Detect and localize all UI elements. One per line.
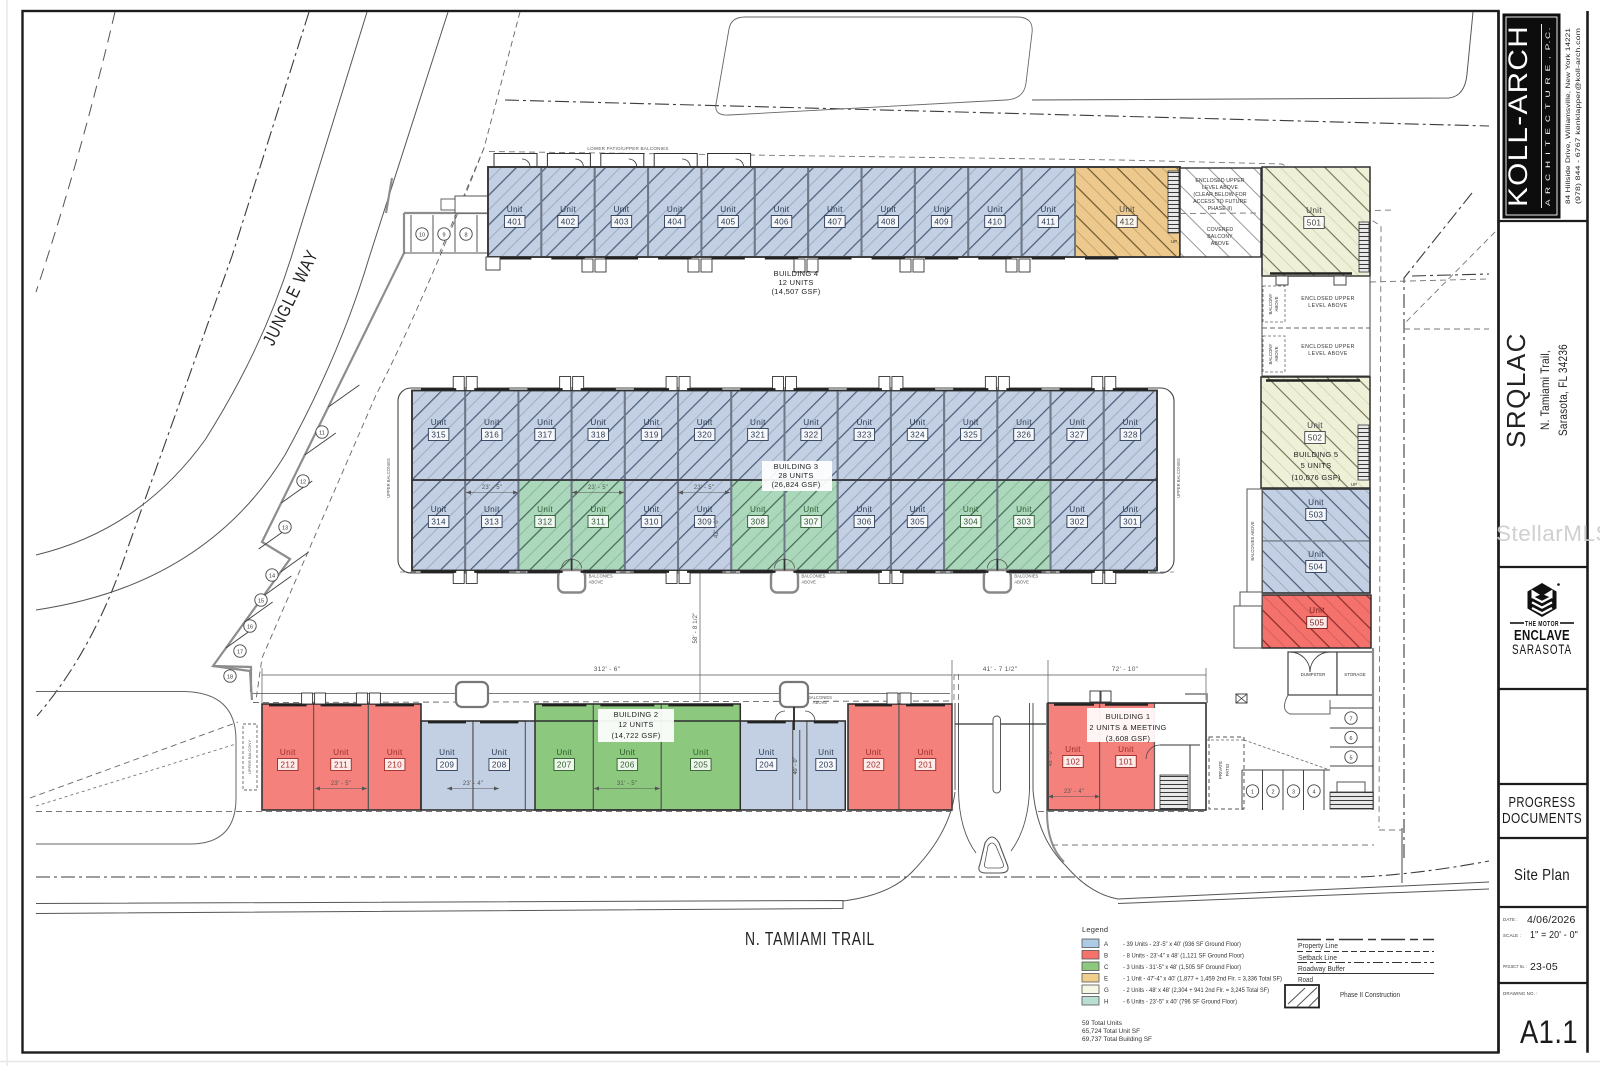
svg-text:Unit: Unit [918, 748, 934, 757]
svg-text:ABOVE: ABOVE [1211, 241, 1230, 247]
svg-text:Sarasota, FL 34236: Sarasota, FL 34236 [1556, 344, 1570, 436]
svg-text:(14,507 GSF): (14,507 GSF) [771, 287, 820, 296]
svg-text:84 Hillside Drive, Williamsvil: 84 Hillside Drive, Williamsville, New Yo… [1565, 28, 1572, 204]
svg-text:ABOVE: ABOVE [1274, 346, 1279, 361]
svg-text:13: 13 [282, 525, 288, 531]
svg-text:Unit: Unit [693, 748, 709, 757]
svg-text:SARASOTA: SARASOTA [1512, 642, 1572, 657]
svg-text:304: 304 [963, 518, 978, 527]
svg-text:ENCLOSED UPPER: ENCLOSED UPPER [1301, 344, 1354, 350]
svg-text:H: H [1104, 999, 1109, 1006]
svg-text:Unit: Unit [1123, 418, 1139, 427]
svg-text:328: 328 [1123, 431, 1138, 440]
svg-text:401: 401 [507, 218, 522, 227]
svg-text:17: 17 [237, 649, 243, 655]
svg-text:PROGRESS: PROGRESS [1509, 794, 1576, 811]
svg-text:Unit: Unit [387, 748, 403, 757]
svg-text:Unit: Unit [1308, 498, 1324, 507]
svg-text:DRAWING NO. :: DRAWING NO. : [1503, 991, 1538, 996]
svg-text:204: 204 [759, 761, 774, 770]
svg-text:DATE :: DATE : [1503, 917, 1518, 922]
svg-text:Unit: Unit [1308, 550, 1324, 559]
svg-text:31' - 5": 31' - 5" [617, 781, 637, 787]
svg-text:Unit: Unit [1306, 206, 1322, 215]
svg-text:Unit: Unit [667, 205, 683, 214]
svg-text:408: 408 [881, 218, 896, 227]
svg-text:12: 12 [300, 479, 306, 485]
svg-text:Setback Line: Setback Line [1298, 955, 1337, 962]
svg-text:23' - 5": 23' - 5" [588, 485, 608, 491]
svg-text:PRIVATE: PRIVATE [1218, 761, 1223, 779]
svg-text:205: 205 [694, 761, 709, 770]
svg-text:BALCONY: BALCONY [1268, 293, 1273, 314]
svg-text:ENCLOSED UPPER: ENCLOSED UPPER [1301, 296, 1354, 302]
svg-text:Unit: Unit [1309, 606, 1325, 615]
svg-text:12 UNITS: 12 UNITS [618, 720, 653, 729]
svg-text:Unit: Unit [774, 205, 790, 214]
svg-text:23' - 5": 23' - 5" [482, 485, 502, 491]
svg-text:319: 319 [644, 431, 659, 440]
svg-text:UP: UP [1351, 482, 1357, 487]
svg-text:Unit: Unit [590, 418, 606, 427]
svg-text:Unit: Unit [1065, 745, 1081, 754]
svg-text:23' - 4": 23' - 4" [463, 781, 483, 787]
svg-text:A R C H I T E C T U R E , P.C.: A R C H I T E C T U R E , P.C. [1545, 26, 1552, 206]
svg-text:Unit: Unit [644, 418, 660, 427]
svg-text:Unit: Unit [803, 418, 819, 427]
svg-text:404: 404 [667, 218, 682, 227]
svg-text:Unit: Unit [1307, 421, 1323, 430]
svg-text:405: 405 [721, 218, 736, 227]
svg-text:Unit: Unit [484, 505, 500, 514]
svg-text:Site Plan: Site Plan [1514, 867, 1570, 884]
svg-text:Unit: Unit [560, 205, 576, 214]
svg-text:Unit: Unit [537, 505, 553, 514]
svg-text:G: G [1104, 987, 1109, 994]
svg-text:Unit: Unit [1123, 505, 1139, 514]
svg-text:310: 310 [644, 518, 659, 527]
svg-text:BUILDING 1: BUILDING 1 [1106, 712, 1151, 721]
svg-text:ABOVE: ABOVE [813, 700, 828, 705]
svg-text:323: 323 [857, 431, 872, 440]
svg-text:40' - 0": 40' - 0" [793, 757, 799, 774]
svg-text:101: 101 [1119, 758, 1134, 767]
svg-text:Unit: Unit [910, 505, 926, 514]
svg-text:312' - 6": 312' - 6" [594, 666, 621, 673]
svg-text:502: 502 [1308, 434, 1323, 443]
svg-text:Unit: Unit [963, 505, 979, 514]
svg-text:Road: Road [1298, 977, 1313, 984]
svg-text:321: 321 [751, 431, 766, 440]
svg-text:402: 402 [561, 218, 576, 227]
svg-text:Unit: Unit [439, 748, 455, 757]
svg-text:3: 3 [1292, 789, 1295, 795]
svg-text:COVERED: COVERED [1207, 227, 1234, 233]
svg-text:409: 409 [934, 218, 949, 227]
svg-text:Legend: Legend [1082, 925, 1108, 934]
svg-text:65,724 Total Unit SF: 65,724 Total Unit SF [1082, 1028, 1140, 1035]
svg-text:322: 322 [804, 431, 819, 440]
svg-text:48' - 0": 48' - 0" [1048, 749, 1054, 766]
svg-text:1: 1 [1251, 789, 1254, 795]
svg-text:314: 314 [431, 518, 446, 527]
svg-text:BALCONIES: BALCONIES [1014, 574, 1038, 579]
svg-text:BALCONY: BALCONY [1268, 343, 1273, 364]
svg-text:15: 15 [258, 598, 264, 604]
svg-text:14: 14 [269, 573, 275, 579]
svg-text:LEVEL ABOVE: LEVEL ABOVE [1308, 303, 1348, 309]
svg-text:207: 207 [557, 761, 572, 770]
svg-text:PATIO: PATIO [1225, 763, 1230, 776]
svg-text:(3,608 GSF): (3,608 GSF) [1106, 734, 1151, 743]
svg-text:Unit: Unit [880, 205, 896, 214]
svg-text:PHASE II): PHASE II) [1208, 206, 1233, 212]
svg-text:Unit: Unit [1016, 505, 1032, 514]
svg-text:Unit: Unit [1069, 505, 1085, 514]
svg-text:504: 504 [1309, 563, 1324, 572]
svg-text:Unit: Unit [484, 418, 500, 427]
svg-text:325: 325 [963, 431, 978, 440]
svg-text:23' - 4": 23' - 4" [1064, 789, 1084, 795]
svg-text:Unit: Unit [1040, 205, 1056, 214]
svg-text:5: 5 [1349, 755, 1352, 761]
svg-text:407: 407 [828, 218, 843, 227]
svg-text:312: 312 [538, 518, 553, 527]
svg-text:11: 11 [319, 430, 325, 436]
svg-text:203: 203 [819, 761, 834, 770]
svg-text:12 UNITS: 12 UNITS [778, 278, 813, 287]
svg-text:302: 302 [1070, 518, 1085, 527]
svg-text:Unit: Unit [590, 505, 606, 514]
svg-text:Unit: Unit [720, 205, 736, 214]
svg-text:327: 327 [1070, 431, 1085, 440]
svg-text:28 UNITS: 28 UNITS [778, 471, 813, 480]
svg-text:Unit: Unit [280, 748, 296, 757]
svg-text:305: 305 [910, 518, 925, 527]
svg-text:Unit: Unit [910, 418, 926, 427]
svg-text:BALCONIES: BALCONIES [589, 574, 613, 579]
svg-text:UPPER BALCONY: UPPER BALCONY [247, 740, 252, 774]
svg-text:Unit: Unit [507, 205, 523, 214]
svg-text:PROJECT No. :: PROJECT No. : [1503, 964, 1527, 969]
svg-text:58' - 8 1/2": 58' - 8 1/2" [693, 612, 699, 643]
svg-text:Unit: Unit [644, 505, 660, 514]
svg-text:307: 307 [804, 518, 819, 527]
svg-text:BUILDING 4: BUILDING 4 [774, 269, 819, 278]
svg-text:- 8 Units - 23'-4" x 48' (1,1: - 8 Units - 23'-4" x 48' (1,121 SF Groun… [1123, 953, 1244, 960]
svg-text:Unit: Unit [827, 205, 843, 214]
svg-text:406: 406 [774, 218, 789, 227]
svg-text:209: 209 [440, 761, 455, 770]
svg-text:ABOVE: ABOVE [1274, 296, 1279, 311]
svg-text:Unit: Unit [556, 748, 572, 757]
svg-text:(26,824 GSF): (26,824 GSF) [771, 480, 820, 489]
svg-text:59 Total Units: 59 Total Units [1082, 1020, 1123, 1027]
svg-text:7: 7 [1349, 716, 1352, 722]
svg-text:LOWER PATIO/UPPER BALCONIES: LOWER PATIO/UPPER BALCONIES [587, 146, 668, 151]
svg-text:Unit: Unit [697, 418, 713, 427]
svg-text:Unit: Unit [619, 748, 635, 757]
svg-text:A: A [1104, 941, 1109, 948]
svg-text:18: 18 [227, 674, 233, 680]
svg-text:Roadway Buffer: Roadway Buffer [1298, 966, 1346, 973]
svg-text:308: 308 [751, 518, 766, 527]
svg-text:326: 326 [1017, 431, 1032, 440]
svg-text:Unit: Unit [1119, 205, 1135, 214]
svg-text:2 UNITS & MEETING: 2 UNITS & MEETING [1089, 723, 1166, 732]
svg-text:Unit: Unit [818, 748, 834, 757]
svg-text:Unit: Unit [987, 205, 1003, 214]
svg-text:Unit: Unit [750, 505, 766, 514]
svg-text:324: 324 [910, 431, 925, 440]
svg-text:- 6 Units - 23'-5" x 40' (796: - 6 Units - 23'-5" x 40' (796 SF Ground … [1123, 999, 1237, 1006]
svg-text:B: B [1104, 953, 1108, 960]
svg-text:311: 311 [591, 518, 605, 527]
svg-text:201: 201 [918, 761, 933, 770]
svg-text:LEVEL ABOVE: LEVEL ABOVE [1308, 351, 1348, 357]
svg-text:ABOVE: ABOVE [802, 580, 817, 585]
svg-text:Unit: Unit [934, 205, 950, 214]
svg-text:317: 317 [538, 431, 553, 440]
svg-text:BUILDING 2: BUILDING 2 [614, 710, 659, 719]
svg-text:23' - 5": 23' - 5" [331, 781, 351, 787]
svg-text:Unit: Unit [431, 418, 447, 427]
svg-text:BALCONY: BALCONY [1207, 234, 1233, 240]
svg-text:210: 210 [387, 761, 402, 770]
svg-text:6: 6 [1349, 736, 1352, 742]
svg-text:211: 211 [334, 761, 348, 770]
svg-text:UPPER BALCONIES: UPPER BALCONIES [1176, 458, 1181, 498]
svg-text:318: 318 [591, 431, 606, 440]
svg-text:Unit: Unit [963, 418, 979, 427]
svg-text:306: 306 [857, 518, 872, 527]
svg-text:23' - 5": 23' - 5" [694, 485, 714, 491]
svg-text:Unit: Unit [759, 748, 775, 757]
svg-text:4: 4 [1312, 789, 1315, 795]
svg-text:ACCESS TO FUTURE: ACCESS TO FUTURE [1193, 199, 1247, 205]
svg-text:202: 202 [866, 761, 881, 770]
svg-text:206: 206 [620, 761, 635, 770]
svg-text:208: 208 [492, 761, 507, 770]
svg-text:Unit: Unit [431, 505, 447, 514]
svg-text:501: 501 [1307, 219, 1322, 228]
svg-text:A1.1: A1.1 [1520, 1014, 1578, 1050]
svg-text:- 2 Units - 48' x 48' (2,304 +: - 2 Units - 48' x 48' (2,304 + 941 2nd F… [1123, 987, 1269, 994]
svg-text:(14,722 GSF): (14,722 GSF) [611, 731, 660, 740]
svg-text:DOCUMENTS: DOCUMENTS [1502, 810, 1582, 827]
svg-text:403: 403 [614, 218, 629, 227]
svg-text:BUILDING 3: BUILDING 3 [774, 462, 819, 471]
svg-text:BALCONIES ABOVE: BALCONIES ABOVE [1250, 521, 1255, 561]
svg-text:69,737 Total Building SF: 69,737 Total Building SF [1082, 1036, 1152, 1043]
svg-text:4/06/2026: 4/06/2026 [1527, 914, 1576, 926]
svg-text:SCALE :: SCALE : [1503, 933, 1521, 938]
svg-text:- 3 Units - 31'-5" x 48' (1,50: - 3 Units - 31'-5" x 48' (1,505 SF Groun… [1123, 964, 1241, 971]
svg-text:ENCLOSED UPPER: ENCLOSED UPPER [1195, 178, 1244, 184]
svg-text:Unit: Unit [697, 505, 713, 514]
svg-text:503: 503 [1309, 511, 1324, 520]
svg-text:Unit: Unit [491, 748, 507, 757]
svg-text:E: E [1104, 976, 1108, 983]
svg-text:C: C [1104, 964, 1109, 971]
svg-text:Unit: Unit [1016, 418, 1032, 427]
svg-text:Unit: Unit [333, 748, 349, 757]
svg-text:10: 10 [419, 232, 425, 238]
svg-text:DUMPSTER: DUMPSTER [1301, 672, 1326, 677]
svg-text:Unit: Unit [866, 748, 882, 757]
svg-text:303: 303 [1017, 518, 1032, 527]
svg-text:- 1 Unit - 47'-4" x 40' (1,877: - 1 Unit - 47'-4" x 40' (1,877 + 1,459 2… [1123, 976, 1282, 983]
svg-text:(CLEAR BELOW FOR: (CLEAR BELOW FOR [1193, 192, 1246, 198]
svg-text:102: 102 [1066, 758, 1081, 767]
svg-text:N. TAMIAMI TRAIL: N. TAMIAMI TRAIL [745, 929, 875, 949]
svg-text:212: 212 [281, 761, 296, 770]
svg-text:Property Line: Property Line [1298, 943, 1338, 950]
svg-text:Unit: Unit [803, 505, 819, 514]
svg-text:Unit: Unit [1118, 745, 1134, 754]
svg-text:16: 16 [247, 624, 253, 630]
svg-text:Phase II Construction: Phase II Construction [1340, 992, 1400, 999]
svg-text:UP: UP [1171, 239, 1177, 244]
svg-text:StellarMLS: StellarMLS [1496, 521, 1600, 546]
svg-text:Unit: Unit [1069, 418, 1085, 427]
svg-text:N. Tamiami Trail,: N. Tamiami Trail, [1538, 350, 1552, 430]
svg-text:(10,076 GSF): (10,076 GSF) [1291, 473, 1340, 482]
svg-text:- 39 Units - 23'-5" x 40' (936: - 39 Units - 23'-5" x 40' (936 SF Ground… [1123, 941, 1241, 948]
svg-text:THE MOTOR: THE MOTOR [1525, 621, 1559, 628]
svg-text:Unit: Unit [750, 418, 766, 427]
svg-text:Unit: Unit [856, 505, 872, 514]
svg-text:2: 2 [1271, 789, 1274, 795]
svg-text:411: 411 [1041, 218, 1055, 227]
svg-text:320: 320 [697, 431, 712, 440]
svg-text:41' - 7 1/2": 41' - 7 1/2" [983, 666, 1018, 673]
svg-text:301: 301 [1123, 518, 1138, 527]
svg-text:SRQLAC: SRQLAC [1501, 332, 1531, 448]
svg-text:8: 8 [464, 232, 467, 238]
svg-text:316: 316 [485, 431, 500, 440]
svg-text:KOLL-ARCH: KOLL-ARCH [1503, 25, 1533, 207]
svg-text:313: 313 [485, 518, 500, 527]
svg-text:309: 309 [697, 518, 712, 527]
svg-text:LEVEL ABOVE: LEVEL ABOVE [1202, 185, 1239, 191]
svg-text:UPPER BALCONIES: UPPER BALCONIES [386, 458, 391, 498]
svg-text:42' - 0": 42' - 0" [714, 518, 720, 538]
svg-text:ABOVE: ABOVE [1014, 580, 1029, 585]
svg-text:BUILDING 5: BUILDING 5 [1294, 450, 1339, 459]
svg-text:505: 505 [1310, 619, 1325, 628]
svg-text:5 UNITS: 5 UNITS [1301, 461, 1332, 470]
svg-text:412: 412 [1120, 218, 1135, 227]
svg-text:(978) 844 - 6767 kenklapp: (978) 844 - 6767 kenklapper@koll-arch.co… [1575, 28, 1582, 204]
svg-text:1" = 20' - 0": 1" = 20' - 0" [1530, 930, 1578, 941]
svg-text:Unit: Unit [856, 418, 872, 427]
svg-text:ABOVE: ABOVE [589, 580, 604, 585]
svg-text:Unit: Unit [614, 205, 630, 214]
svg-text:315: 315 [431, 431, 446, 440]
svg-text:BALCONIES: BALCONIES [802, 574, 826, 579]
svg-text:9: 9 [442, 232, 445, 238]
svg-text:Unit: Unit [537, 418, 553, 427]
svg-text:72' - 10": 72' - 10" [1112, 666, 1139, 673]
svg-text:STORAGE: STORAGE [1344, 672, 1365, 677]
svg-text:410: 410 [988, 218, 1003, 227]
svg-text:23-05: 23-05 [1530, 961, 1558, 973]
